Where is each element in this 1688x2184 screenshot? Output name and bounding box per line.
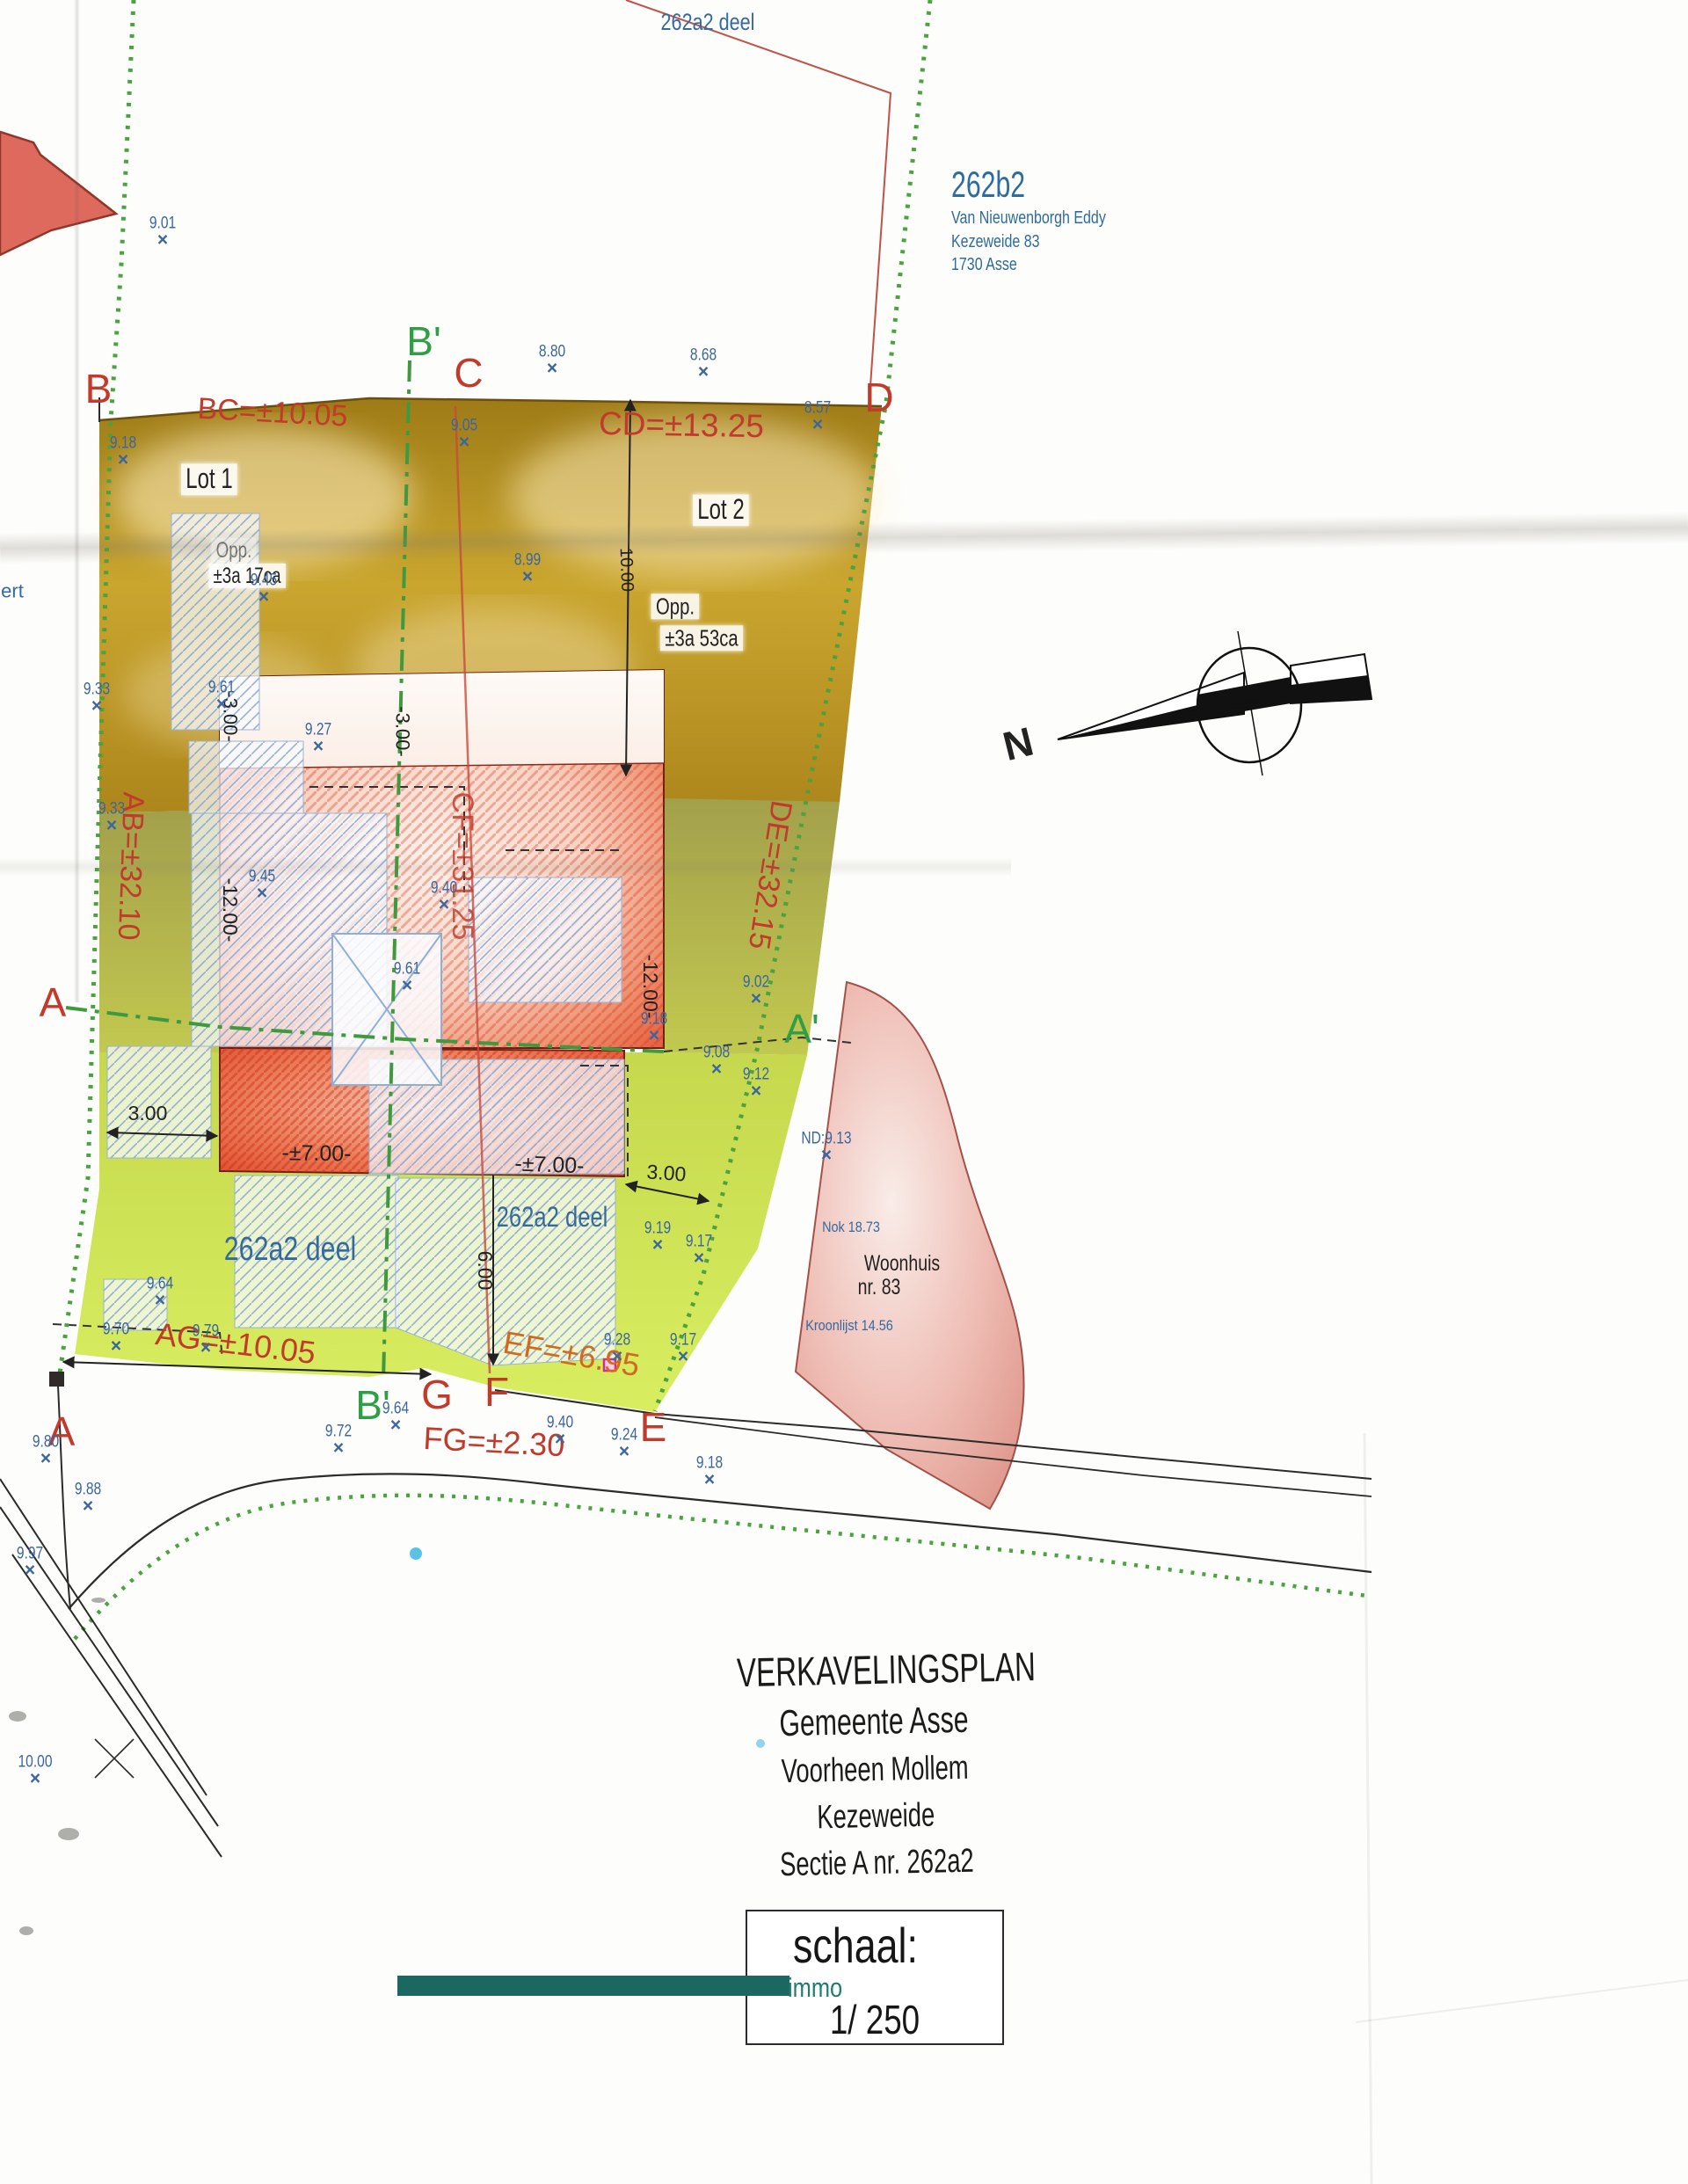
elevation-point: 9.40× <box>428 878 461 911</box>
elevation-point: 10.00× <box>14 1752 56 1785</box>
elevation-point: 9.18× <box>638 1009 671 1042</box>
elevation-value: 9.40 <box>547 1413 573 1432</box>
elevation-value: 9.24 <box>611 1425 637 1445</box>
survey-x-icon: × <box>83 1499 93 1512</box>
dimension-label: -3.00- <box>392 706 412 756</box>
elevation-point: 9.72× <box>323 1422 355 1454</box>
vertex-label: D <box>864 376 893 419</box>
survey-x-icon: × <box>711 1062 722 1075</box>
elevation-value: 9.12 <box>743 1065 769 1084</box>
scale-label: schaal: <box>793 1917 918 1974</box>
survey-x-icon: × <box>652 1238 663 1251</box>
survey-x-icon: × <box>612 1350 622 1363</box>
survey-x-icon: × <box>555 1432 565 1445</box>
vertex-label: E <box>640 1406 667 1448</box>
elevation-point: 8.68× <box>688 346 720 378</box>
former-municipality: Voorheen Mollem <box>738 1749 1011 1792</box>
survey-x-icon: × <box>257 886 267 899</box>
elevation-point: 9.02× <box>740 972 773 1005</box>
elevation-point: 9.01× <box>147 214 179 246</box>
elevation-value: 9.27 <box>305 720 331 739</box>
elevation-value: 9.17 <box>686 1232 712 1251</box>
dimension-label: AG=±10.05 <box>154 1317 317 1370</box>
map-label: N <box>999 720 1037 768</box>
elevation-point: 9.70× <box>100 1320 133 1352</box>
elevation-value: 9.64 <box>147 1274 173 1293</box>
elevation-value: 9.70 <box>103 1320 129 1339</box>
elevation-value: 9.28 <box>604 1330 630 1350</box>
elevation-value: 9.18 <box>696 1453 723 1473</box>
elevation-point: 9.40× <box>544 1413 577 1445</box>
elevation-point: 9.33× <box>81 680 113 712</box>
vertex-label: F <box>484 1371 509 1413</box>
elevation-point: ND:9.13× <box>796 1129 857 1161</box>
elevation-value: 9.17 <box>670 1330 696 1350</box>
elevation-value: 8.80 <box>539 342 565 361</box>
survey-x-icon: × <box>678 1350 688 1363</box>
elevation-value: 9.80 <box>33 1432 59 1452</box>
survey-x-icon: × <box>91 699 102 712</box>
vertex-label: G <box>421 1373 453 1416</box>
survey-x-icon: × <box>25 1563 35 1576</box>
map-label: 262a2 deel <box>497 1203 608 1233</box>
elevation-value: 9.05 <box>451 416 477 435</box>
survey-x-icon: × <box>333 1441 344 1454</box>
survey-x-icon: × <box>459 435 469 448</box>
map-label: 262a2 deel <box>224 1233 356 1268</box>
neighbor-parcel-id: 262b2 <box>951 164 1090 206</box>
survey-x-icon: × <box>751 1084 761 1097</box>
map-label: ±3a 53ca <box>660 625 743 651</box>
elevation-point: 9.45× <box>248 571 280 603</box>
elevation-value: 9.33 <box>84 680 110 699</box>
dimension-label: -±7.00- <box>514 1153 585 1178</box>
elevation-point: 9.64× <box>144 1274 177 1307</box>
cadastral-section: Sectie A nr. 262a2 <box>740 1842 1013 1885</box>
elevation-value: 9.97 <box>17 1544 43 1563</box>
elevation-point: 8.57× <box>802 398 834 431</box>
elevation-value: 9.02 <box>743 972 769 992</box>
survey-x-icon: × <box>40 1452 51 1465</box>
elevation-value: 9.61 <box>208 678 235 697</box>
dimension-label: BC=±10.05 <box>197 394 348 433</box>
survey-x-icon: × <box>200 1341 211 1354</box>
vertex-label: A <box>40 981 67 1023</box>
dimension-label: CF=±31.25 <box>446 792 477 941</box>
elevation-value: 9.72 <box>325 1422 352 1441</box>
elevation-point: 9.33× <box>96 799 128 832</box>
map-label: ert <box>1 580 24 601</box>
map-label: Woonhuis <box>864 1252 940 1275</box>
elevation-value: 10.00 <box>18 1752 53 1772</box>
survey-x-icon: × <box>216 697 227 710</box>
elevation-point: 9.97× <box>14 1544 47 1576</box>
elevation-value: 9.61 <box>394 959 420 979</box>
map-label: Lot 1 <box>181 463 237 495</box>
survey-x-icon: × <box>821 1148 832 1161</box>
map-label: 262a2 deel <box>661 10 755 34</box>
map-label: Nok 18.73 <box>822 1219 880 1235</box>
elevation-point: 9.61× <box>206 678 238 710</box>
survey-x-icon: × <box>619 1445 629 1458</box>
dimension-label: CD=±13.25 <box>599 407 765 444</box>
survey-x-icon: × <box>157 233 168 246</box>
survey-x-icon: × <box>751 992 761 1005</box>
elevation-point: 9.17× <box>683 1232 716 1264</box>
vertex-label: C <box>454 352 483 394</box>
elevation-value: 8.99 <box>514 550 541 570</box>
map-label: Opp. <box>211 538 256 563</box>
elevation-value: 9.18 <box>110 433 136 453</box>
elevation-value: 9.64 <box>382 1399 409 1418</box>
dimension-label: DE=±32.15 <box>742 798 797 951</box>
plan-title: VERKAVELINGSPLAN <box>736 1643 1009 1696</box>
elevation-point: 9.08× <box>701 1043 733 1075</box>
survey-x-icon: × <box>439 898 449 911</box>
elevation-point: 9.17× <box>667 1330 700 1363</box>
survey-x-icon: × <box>30 1772 40 1785</box>
survey-x-icon: × <box>258 590 269 603</box>
elevation-point: 9.61× <box>391 959 424 992</box>
dimension-label: -±7.00- <box>281 1141 351 1166</box>
elevation-point: 9.88× <box>72 1480 105 1512</box>
elevation-point: 9.45× <box>246 867 279 899</box>
neighbor-owner-city: 1730 Asse <box>951 255 1106 276</box>
elevation-value: 9.88 <box>75 1480 101 1499</box>
elevation-point: 9.79× <box>190 1321 222 1354</box>
dimension-label: 3.00 <box>646 1161 687 1184</box>
verkavelingsplan-scan: BB'CDAA'AB'GFEBC=±10.05CD=±13.25AB=±32.1… <box>0 0 1688 2184</box>
dimension-label: 3.00 <box>128 1103 168 1124</box>
elevation-value: 9.08 <box>703 1043 730 1062</box>
elevation-value: 9.79 <box>193 1321 219 1341</box>
survey-x-icon: × <box>390 1418 401 1431</box>
survey-x-icon: × <box>812 418 823 431</box>
survey-x-icon: × <box>155 1293 165 1307</box>
elevation-value: 9.45 <box>249 867 275 886</box>
elevation-value: 9.45 <box>251 571 277 590</box>
elevation-point: 9.19× <box>642 1219 674 1251</box>
elevation-value: 9.40 <box>431 878 457 898</box>
immo-logo-text: immo <box>788 1972 842 2004</box>
neighbor-owner-name: Van Nieuwenborgh Eddy <box>951 208 1106 229</box>
elevation-point: 9.18× <box>694 1453 726 1486</box>
map-label: Opp. <box>651 593 700 619</box>
map-label: Lot 2 <box>693 494 749 526</box>
street-name: Kezeweide <box>739 1795 1012 1838</box>
elevation-point: 9.80× <box>30 1432 62 1465</box>
elevation-value: 9.01 <box>149 214 176 233</box>
survey-x-icon: × <box>704 1473 715 1486</box>
elevation-value: 9.33 <box>98 799 125 819</box>
survey-x-icon: × <box>111 1339 121 1352</box>
neighbor-owner-address: Kezeweide 83 <box>951 232 1106 253</box>
survey-x-icon: × <box>694 1251 704 1264</box>
vertex-label: B' <box>406 320 440 362</box>
elevation-point: 9.28× <box>601 1330 634 1363</box>
elevation-point: 9.24× <box>608 1425 641 1458</box>
neighbor-parcel-block: 262b2 Van Nieuwenborgh Eddy Kezeweide 83… <box>951 164 1145 276</box>
survey-x-icon: × <box>649 1029 659 1042</box>
survey-x-icon: × <box>698 365 709 378</box>
dimension-label: 10.00 <box>616 548 637 593</box>
elevation-value: 9.19 <box>644 1219 671 1238</box>
map-label: nr. 83 <box>858 1276 901 1299</box>
survey-x-icon: × <box>547 361 557 375</box>
elevation-point: 9.05× <box>448 416 481 448</box>
elevation-point: 8.80× <box>536 342 569 375</box>
elevation-point: 9.12× <box>740 1065 773 1097</box>
title-block: VERKAVELINGSPLAN Gemeente Asse Voorheen … <box>683 1642 1066 1887</box>
elevation-value: 8.57 <box>804 398 831 418</box>
elevation-point: 8.99× <box>512 550 544 583</box>
map-label: Kroonlijst 14.56 <box>805 1318 893 1334</box>
vertex-label: A' <box>784 1008 819 1050</box>
survey-x-icon: × <box>118 453 128 466</box>
vertex-label: B <box>85 368 113 410</box>
elevation-point: 9.27× <box>302 720 335 753</box>
survey-x-icon: × <box>313 739 324 753</box>
elevation-value: 8.68 <box>690 346 717 365</box>
elevation-value: ND:9.13 <box>801 1129 851 1148</box>
elevation-point: 9.18× <box>107 433 140 466</box>
survey-x-icon: × <box>522 570 533 583</box>
dimension-label: -12.00- <box>220 878 241 943</box>
municipality: Gemeente Asse <box>738 1698 1011 1745</box>
elevation-value: 9.18 <box>641 1009 667 1029</box>
dimension-label: 6.00 <box>475 1251 496 1291</box>
survey-x-icon: × <box>106 819 117 832</box>
survey-x-icon: × <box>402 979 412 992</box>
elevation-point: 9.64× <box>380 1399 412 1431</box>
immo-logo-bar <box>397 1976 789 1996</box>
